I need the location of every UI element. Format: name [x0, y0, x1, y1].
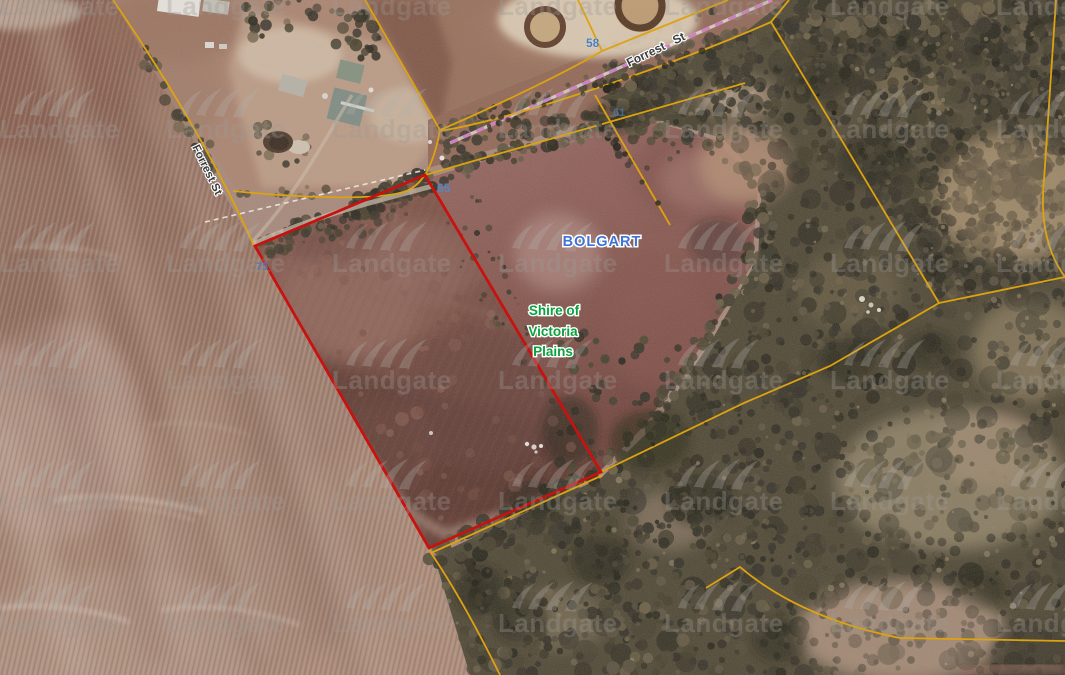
svg-text:BOLGART: BOLGART: [563, 234, 642, 250]
svg-text:Shire of: Shire of: [529, 303, 580, 318]
svg-text:65: 65: [437, 181, 451, 195]
svg-text:Victoria: Victoria: [528, 324, 578, 339]
svg-text:75: 75: [256, 261, 268, 273]
svg-text:61: 61: [613, 107, 625, 119]
svg-text:58: 58: [586, 36, 600, 50]
svg-text:Plains: Plains: [533, 344, 573, 359]
